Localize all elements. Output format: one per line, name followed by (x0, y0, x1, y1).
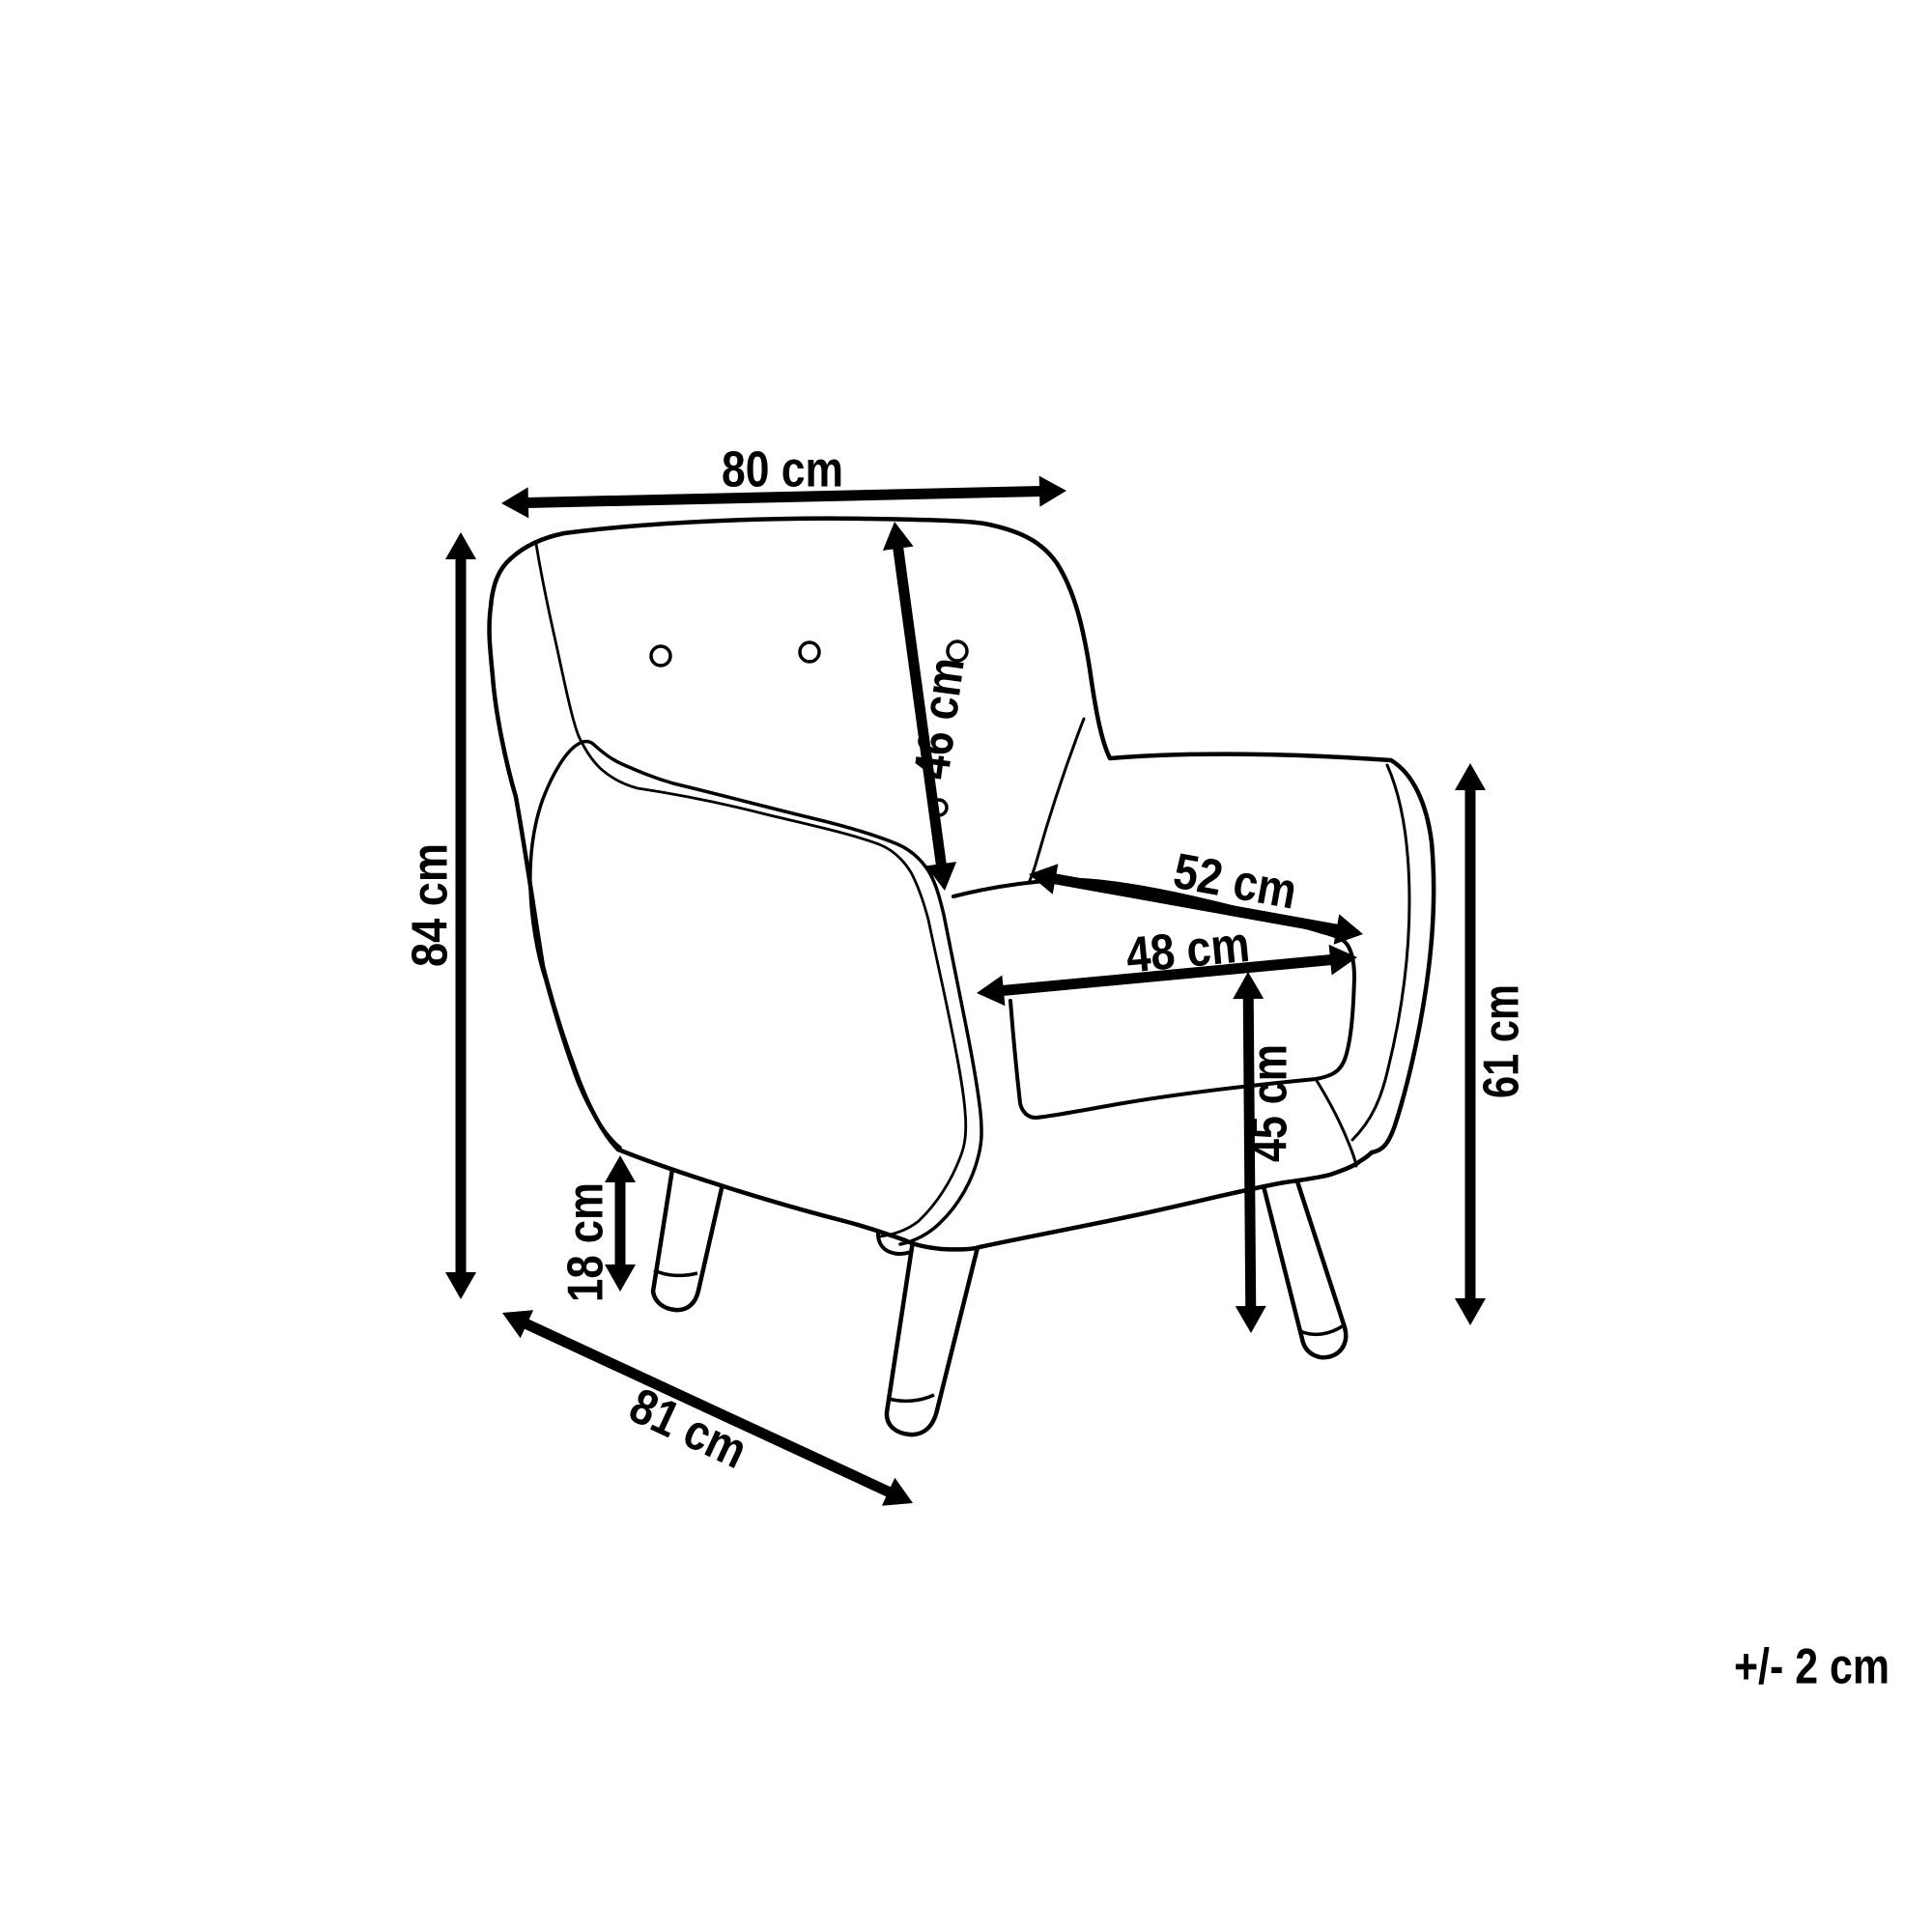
svg-text:61 cm: 61 cm (1474, 984, 1530, 1098)
svg-text:48 cm: 48 cm (1123, 917, 1252, 984)
svg-text:+/- 2 cm: +/- 2 cm (1734, 1639, 1889, 1695)
svg-text:84 cm: 84 cm (403, 843, 459, 967)
svg-text:18 cm: 18 cm (558, 1182, 614, 1302)
svg-text:80 cm: 80 cm (722, 442, 843, 498)
svg-text:45 cm: 45 cm (1242, 1044, 1298, 1162)
